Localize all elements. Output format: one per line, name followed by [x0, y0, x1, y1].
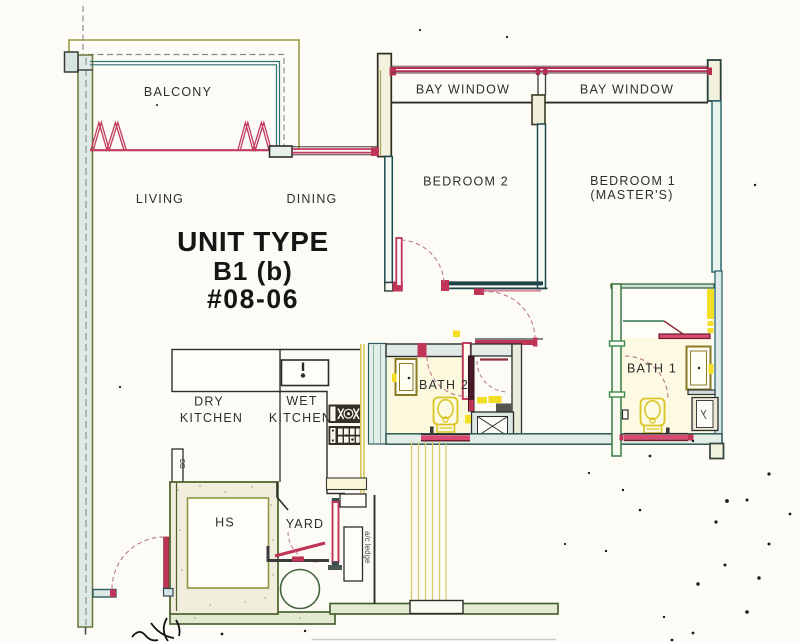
svg-text:HS: HS: [215, 516, 235, 530]
svg-text:KITCHEN: KITCHEN: [180, 411, 243, 425]
svg-text:(MASTER'S): (MASTER'S): [590, 188, 673, 202]
svg-text:BAY WINDOW: BAY WINDOW: [580, 83, 674, 97]
svg-text:DB: DB: [178, 459, 185, 469]
svg-text:DINING: DINING: [287, 192, 338, 206]
svg-text:KITCHEN: KITCHEN: [269, 411, 332, 425]
svg-text:DRY: DRY: [194, 395, 224, 409]
svg-text:BATH 2: BATH 2: [419, 378, 469, 392]
svg-text:#08-06: #08-06: [207, 284, 299, 314]
svg-text:BALCONY: BALCONY: [144, 85, 212, 99]
svg-text:B1 (b): B1 (b): [213, 256, 293, 286]
svg-text:BEDROOM 1: BEDROOM 1: [590, 174, 676, 188]
svg-text:BAY WINDOW: BAY WINDOW: [416, 83, 510, 97]
svg-text:UNIT TYPE: UNIT TYPE: [177, 226, 329, 257]
svg-text:BEDROOM 2: BEDROOM 2: [423, 175, 509, 189]
svg-text:a/c ledge: a/c ledge: [363, 531, 372, 564]
svg-text:YARD: YARD: [286, 517, 325, 531]
svg-text:BATH 1: BATH 1: [627, 362, 677, 376]
svg-text:WET: WET: [286, 394, 317, 408]
svg-text:LIVING: LIVING: [136, 192, 184, 206]
